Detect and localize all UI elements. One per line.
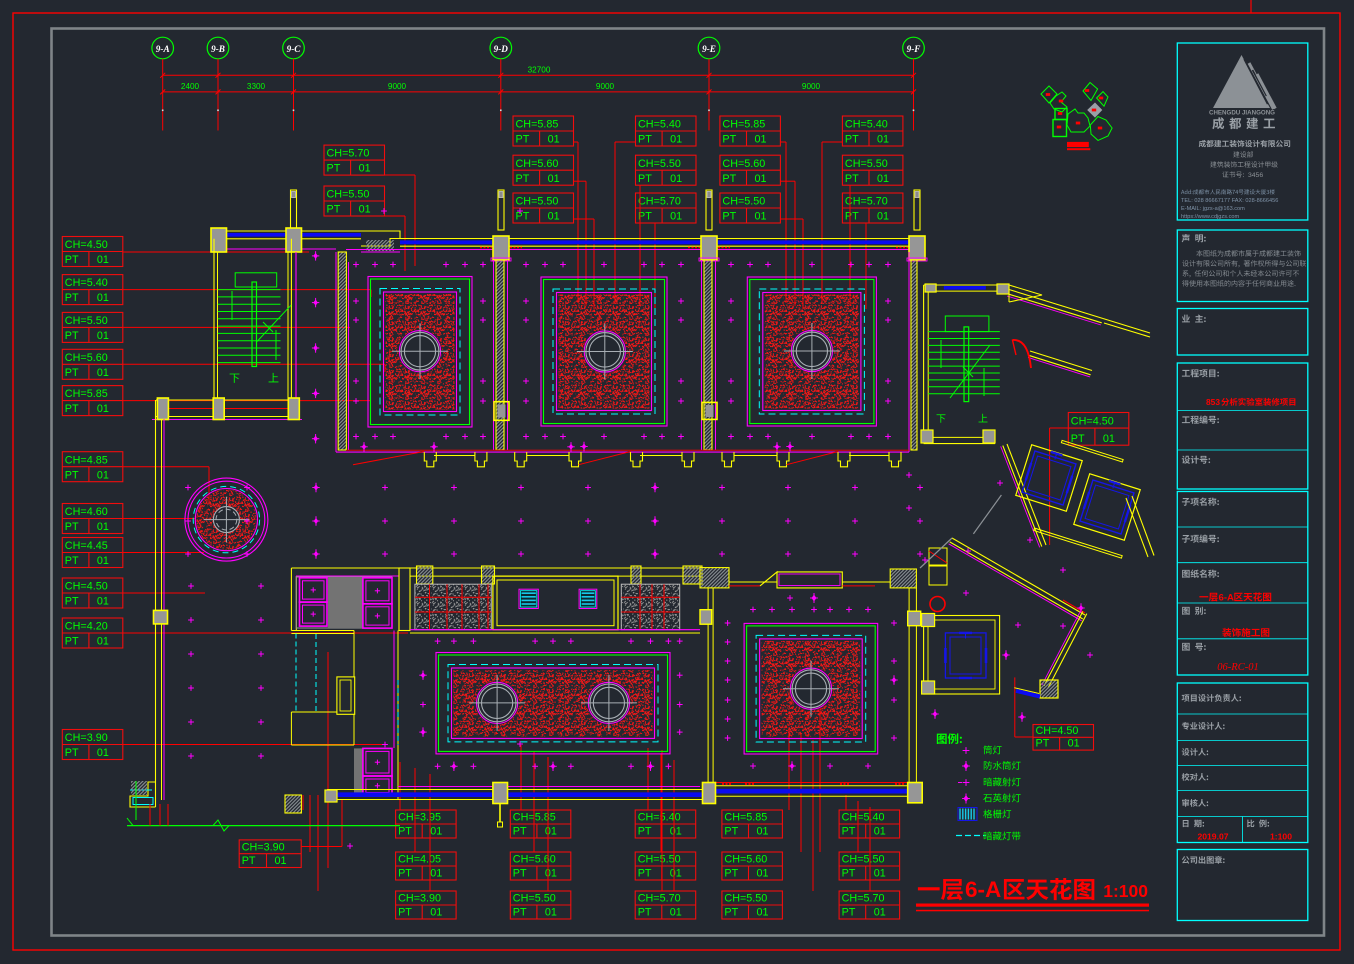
svg-text:1:100: 1:100	[1270, 832, 1292, 842]
svg-text:CH=4.50: CH=4.50	[65, 239, 108, 251]
svg-text:01: 01	[430, 868, 442, 880]
svg-text:01: 01	[877, 211, 889, 223]
svg-text:01: 01	[97, 254, 109, 266]
svg-text:CH=5.50: CH=5.50	[516, 196, 559, 208]
svg-text:CH=5.60: CH=5.60	[513, 854, 556, 866]
svg-text:PT: PT	[327, 163, 341, 175]
svg-text:PT: PT	[724, 907, 738, 919]
svg-text:PT: PT	[842, 907, 856, 919]
svg-text:01: 01	[670, 826, 682, 838]
svg-text:PT: PT	[65, 747, 79, 759]
svg-text:9000: 9000	[388, 82, 407, 91]
svg-text:01: 01	[548, 134, 560, 146]
svg-text:CH=5.70: CH=5.70	[638, 893, 681, 905]
svg-text:01: 01	[97, 555, 109, 567]
svg-text:01: 01	[548, 173, 560, 185]
svg-text:CH=5.60: CH=5.60	[722, 158, 765, 170]
svg-text:PT: PT	[724, 826, 738, 838]
svg-text:CH=3.90: CH=3.90	[242, 841, 285, 853]
svg-text:01: 01	[874, 868, 886, 880]
svg-text:PT: PT	[638, 868, 652, 880]
svg-text:CH=5.40: CH=5.40	[638, 119, 681, 131]
svg-text:PT: PT	[65, 596, 79, 608]
svg-text:PT: PT	[842, 868, 856, 880]
svg-text:PT: PT	[1036, 738, 1050, 750]
svg-text:CH=5.50: CH=5.50	[842, 854, 885, 866]
svg-text:PT: PT	[65, 636, 79, 648]
svg-text:9000: 9000	[596, 82, 615, 91]
svg-text:E-MAIL: jgzs-a@163.com: E-MAIL: jgzs-a@163.com	[1181, 206, 1245, 212]
svg-text:01: 01	[874, 826, 886, 838]
svg-text:01: 01	[757, 826, 769, 838]
svg-text:01: 01	[877, 134, 889, 146]
svg-text:TEL: 028 86667177 FAX: 028-86: TEL: 028 86667177 FAX: 028-8666456	[1181, 198, 1278, 204]
svg-text:PT: PT	[842, 826, 856, 838]
svg-text:CH=5.70: CH=5.70	[842, 893, 885, 905]
svg-text:CH=5.50: CH=5.50	[327, 189, 370, 201]
svg-text:CH=4.45: CH=4.45	[65, 540, 108, 552]
svg-text:CHENGDU JIANGONG: CHENGDU JIANGONG	[1209, 110, 1275, 117]
svg-text:01: 01	[877, 173, 889, 185]
svg-text:PT: PT	[724, 868, 738, 880]
svg-text:PT: PT	[242, 855, 256, 867]
svg-text:CH=3.95: CH=3.95	[398, 812, 441, 824]
svg-text:01: 01	[670, 211, 682, 223]
svg-text:9-C: 9-C	[287, 44, 302, 54]
svg-text:PT: PT	[65, 330, 79, 342]
svg-text:01: 01	[545, 868, 557, 880]
svg-text:01: 01	[874, 907, 886, 919]
svg-text:01: 01	[757, 907, 769, 919]
svg-text:PT: PT	[722, 173, 736, 185]
svg-text:CH=5.60: CH=5.60	[516, 158, 559, 170]
svg-text:CH=5.85: CH=5.85	[516, 119, 559, 131]
svg-text:9-D: 9-D	[494, 44, 509, 54]
svg-text:32700: 32700	[528, 66, 551, 75]
svg-text:01: 01	[97, 747, 109, 759]
svg-text:01: 01	[670, 134, 682, 146]
svg-text:PT: PT	[638, 907, 652, 919]
svg-text:01: 01	[755, 211, 767, 223]
svg-text:CH=5.40: CH=5.40	[845, 119, 888, 131]
svg-text:2019.07: 2019.07	[1197, 832, 1228, 842]
svg-text:PT: PT	[516, 211, 530, 223]
svg-text:01: 01	[548, 211, 560, 223]
svg-text:01: 01	[670, 907, 682, 919]
svg-text:PT: PT	[513, 868, 527, 880]
svg-text:PT: PT	[398, 826, 412, 838]
svg-text:CH=5.85: CH=5.85	[65, 388, 108, 400]
svg-text:PT: PT	[65, 555, 79, 567]
svg-text:PT: PT	[638, 134, 652, 146]
svg-text:6-A: 6-A	[1219, 593, 1235, 604]
svg-text:CH=5.50: CH=5.50	[65, 315, 108, 327]
svg-text:9-A: 9-A	[156, 44, 170, 54]
svg-text:9-F: 9-F	[907, 44, 921, 54]
svg-text:01: 01	[97, 367, 109, 379]
svg-text:CH=5.50: CH=5.50	[724, 893, 767, 905]
svg-text:https://www.cdjgzs.com: https://www.cdjgzs.com	[1181, 214, 1239, 220]
svg-text:01: 01	[430, 826, 442, 838]
svg-text:853: 853	[1206, 397, 1220, 407]
svg-text:CH=5.60: CH=5.60	[724, 854, 767, 866]
svg-text:CH=4.50: CH=4.50	[65, 581, 108, 593]
svg-text:01: 01	[275, 855, 287, 867]
svg-text:CH=5.70: CH=5.70	[327, 148, 370, 160]
svg-text:PT: PT	[398, 868, 412, 880]
svg-text:CH=5.70: CH=5.70	[845, 196, 888, 208]
svg-text:01: 01	[97, 521, 109, 533]
svg-text:CH=5.85: CH=5.85	[724, 812, 767, 824]
svg-text:01: 01	[359, 163, 371, 175]
svg-text:01: 01	[97, 403, 109, 415]
svg-text:06-RC-01: 06-RC-01	[1217, 662, 1258, 673]
svg-text:01: 01	[1103, 433, 1115, 445]
svg-text:PT: PT	[722, 134, 736, 146]
svg-text:01: 01	[1068, 738, 1080, 750]
svg-text:01: 01	[545, 907, 557, 919]
svg-text:PT: PT	[1071, 433, 1085, 445]
svg-text:01: 01	[97, 596, 109, 608]
svg-text:01: 01	[97, 292, 109, 304]
svg-text:CH=3.90: CH=3.90	[398, 893, 441, 905]
svg-text:01: 01	[97, 469, 109, 481]
svg-text:9000: 9000	[802, 82, 821, 91]
svg-text:PT: PT	[516, 134, 530, 146]
svg-text:3456: 3456	[1248, 172, 1263, 179]
svg-text:PT: PT	[65, 521, 79, 533]
svg-text:CH=4.05: CH=4.05	[398, 854, 441, 866]
svg-text:PT: PT	[722, 211, 736, 223]
svg-text:PT: PT	[398, 907, 412, 919]
svg-text:CH=5.70: CH=5.70	[638, 196, 681, 208]
svg-text:1:100: 1:100	[1103, 881, 1148, 901]
svg-text:01: 01	[670, 173, 682, 185]
svg-text:2400: 2400	[181, 82, 200, 91]
svg-text:3300: 3300	[247, 82, 266, 91]
svg-text:01: 01	[755, 134, 767, 146]
svg-text:CH=5.50: CH=5.50	[845, 158, 888, 170]
svg-text:CH=4.60: CH=4.60	[65, 506, 108, 518]
svg-text:PT: PT	[845, 211, 859, 223]
svg-text:PT: PT	[65, 292, 79, 304]
svg-text:CH=4.20: CH=4.20	[65, 621, 108, 633]
svg-text:CH=5.85: CH=5.85	[722, 119, 765, 131]
svg-text:CH=4.50: CH=4.50	[1071, 416, 1114, 428]
svg-text:PT: PT	[845, 173, 859, 185]
svg-text:6-A: 6-A	[965, 877, 1001, 902]
svg-text:01: 01	[430, 907, 442, 919]
svg-text:01: 01	[97, 636, 109, 648]
svg-text:CH=5.40: CH=5.40	[842, 812, 885, 824]
svg-text:9-B: 9-B	[211, 44, 225, 54]
svg-text:01: 01	[670, 868, 682, 880]
svg-text:CH=4.50: CH=4.50	[1036, 725, 1079, 737]
svg-text:PT: PT	[65, 403, 79, 415]
svg-text:01: 01	[755, 173, 767, 185]
svg-text:CH=4.85: CH=4.85	[65, 454, 108, 466]
svg-text:PT: PT	[327, 204, 341, 216]
svg-text:PT: PT	[65, 254, 79, 266]
svg-text:CH=5.60: CH=5.60	[65, 352, 108, 364]
svg-text:CH=3.90: CH=3.90	[65, 732, 108, 744]
svg-text:CH=5.40: CH=5.40	[65, 277, 108, 289]
svg-text:PT: PT	[513, 907, 527, 919]
svg-text:PT: PT	[516, 173, 530, 185]
svg-text:PT: PT	[513, 826, 527, 838]
svg-text:01: 01	[757, 868, 769, 880]
svg-text:PT: PT	[638, 826, 652, 838]
svg-text:CH=5.50: CH=5.50	[513, 893, 556, 905]
svg-text:01: 01	[359, 204, 371, 216]
svg-text:01: 01	[97, 330, 109, 342]
svg-text:9-E: 9-E	[702, 44, 716, 54]
svg-text:01: 01	[545, 826, 557, 838]
svg-text:PT: PT	[638, 173, 652, 185]
svg-text:PT: PT	[65, 367, 79, 379]
svg-text:CH=5.50: CH=5.50	[638, 158, 681, 170]
svg-text:PT: PT	[845, 134, 859, 146]
svg-text:PT: PT	[65, 469, 79, 481]
svg-text:CH=5.50: CH=5.50	[722, 196, 765, 208]
